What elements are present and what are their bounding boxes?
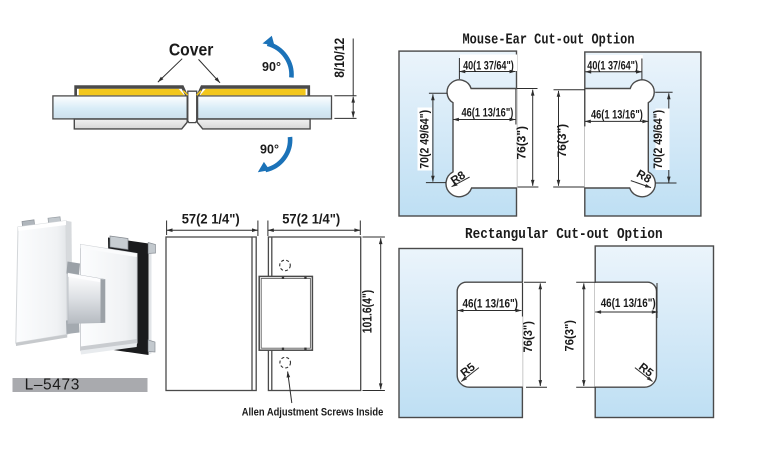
svg-text:46(1 13/16"): 46(1 13/16"): [591, 109, 643, 121]
svg-text:46(1 13/16"): 46(1 13/16"): [463, 298, 519, 310]
svg-text:76(3"): 76(3"): [517, 126, 529, 160]
svg-text:Cover: Cover: [169, 40, 214, 60]
svg-text:76(3"): 76(3"): [565, 320, 577, 352]
svg-text:57(2 1/4"): 57(2 1/4"): [282, 212, 340, 227]
svg-text:101.6(4"): 101.6(4"): [360, 290, 374, 334]
svg-text:Mouse-Ear Cut-out Option: Mouse-Ear Cut-out Option: [463, 31, 635, 48]
svg-text:46(1 13/16"): 46(1 13/16"): [601, 298, 656, 310]
svg-text:40(1 37/64"): 40(1 37/64"): [587, 61, 638, 73]
svg-text:90°: 90°: [260, 143, 279, 157]
svg-text:76(3"): 76(3"): [523, 321, 535, 353]
svg-text:Allen Adjustment Screws Inside: Allen Adjustment Screws Inside: [242, 406, 384, 418]
svg-text:46(1 13/16"): 46(1 13/16"): [462, 107, 514, 119]
svg-text:76(3"): 76(3"): [557, 124, 569, 158]
svg-text:40(1 37/64"): 40(1 37/64"): [463, 60, 514, 72]
svg-text:57(2 1/4"): 57(2 1/4"): [182, 212, 240, 227]
svg-text:70(2 49/64"): 70(2 49/64"): [653, 110, 665, 169]
svg-text:L–5473: L–5473: [25, 377, 80, 394]
svg-text:90°: 90°: [262, 60, 281, 74]
svg-text:8/10/12: 8/10/12: [332, 38, 347, 78]
svg-text:70(2 49/64"): 70(2 49/64"): [419, 110, 431, 169]
svg-text:Rectangular Cut-out Option: Rectangular Cut-out Option: [465, 226, 663, 243]
